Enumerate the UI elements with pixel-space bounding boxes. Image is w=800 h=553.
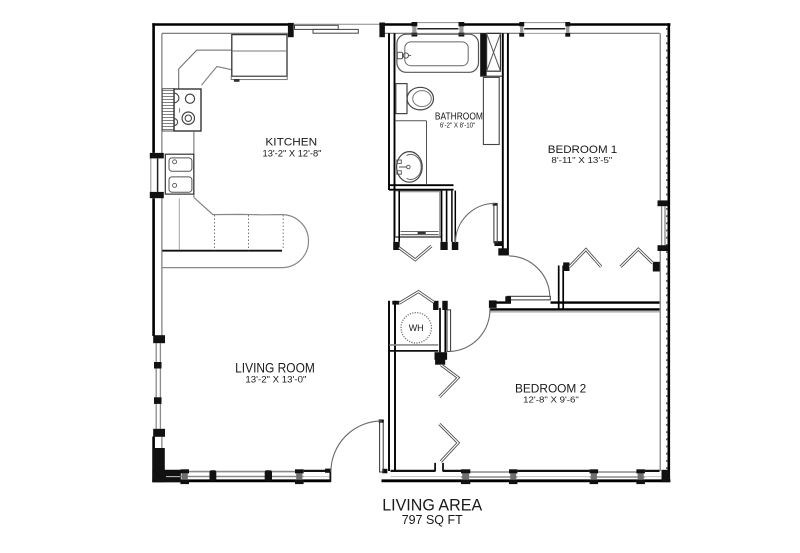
svg-text:13'-2" X 13'-0": 13'-2" X 13'-0" (245, 375, 306, 385)
svg-text:797 SQ FT: 797 SQ FT (402, 512, 463, 527)
svg-text:KITCHEN: KITCHEN (265, 136, 317, 148)
svg-text:BEDROOM 1: BEDROOM 1 (548, 144, 618, 156)
svg-text:13'-2" X 12'-8": 13'-2" X 12'-8" (263, 148, 322, 158)
svg-text:6'-2" X 8'-10": 6'-2" X 8'-10" (440, 120, 476, 129)
svg-text:12'-8" X 9'-6": 12'-8" X 9'-6" (523, 395, 579, 405)
svg-text:WH: WH (409, 323, 424, 333)
svg-text:BEDROOM 2: BEDROOM 2 (515, 382, 587, 396)
svg-text:8'-11" X 13'-5": 8'-11" X 13'-5" (551, 156, 612, 165)
svg-text:LIVING ROOM: LIVING ROOM (235, 361, 315, 376)
